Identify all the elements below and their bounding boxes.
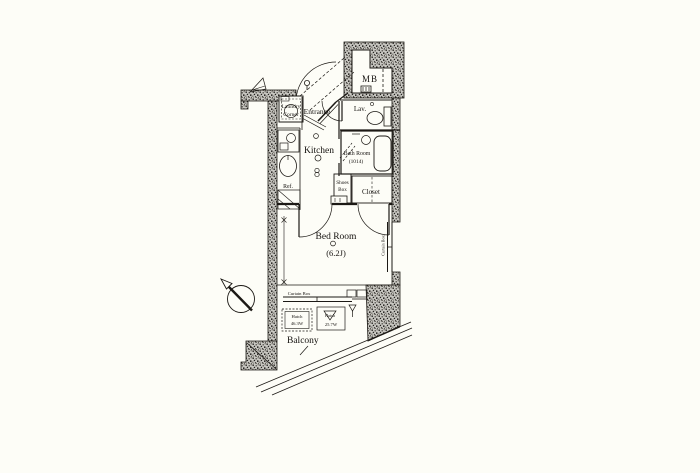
- shoes-label-1: Shoes: [336, 180, 348, 186]
- curtain-box-bottom-label: Curtain Box: [288, 291, 311, 296]
- bath-label-1: Bath Room: [344, 151, 371, 157]
- hatch-left-label-2: 46.3W: [291, 321, 304, 326]
- grill-icon: [280, 143, 288, 150]
- hatch-right-label-2: 25.7W: [325, 322, 338, 327]
- wall-corner-block: [366, 285, 400, 341]
- door-dashed-line: [300, 58, 344, 96]
- entrance-label: Entrance: [304, 107, 331, 116]
- hatch-left-label-1: Hatch: [292, 314, 304, 319]
- laundry-label-2: Corner: [283, 112, 299, 118]
- compass: [221, 279, 255, 313]
- laundry-label-1: Laundry: [282, 104, 301, 110]
- bathtub-icon: [374, 136, 391, 171]
- curtain-box-right-label: Curtain Box: [381, 234, 386, 255]
- toilet-tank-icon: [384, 107, 391, 126]
- toilet-bowl-icon: [367, 112, 383, 125]
- basin-icon: [362, 136, 371, 145]
- ref-label: Ref.: [283, 183, 293, 190]
- site-boundary-lines: [256, 322, 412, 395]
- bedroom: Bed Room (6.2J): [277, 204, 392, 285]
- wall-left-column: [268, 101, 277, 341]
- boundary-tick: [300, 346, 308, 355]
- east-window: Curtain Box: [381, 222, 393, 272]
- hatch-left-box: [282, 309, 312, 331]
- bath-label-2: (1014): [349, 158, 364, 165]
- wall-top-band-step: [241, 101, 248, 109]
- ceiling-symbol-1: [314, 134, 319, 139]
- sill-box-2: [357, 290, 367, 297]
- compass-needle: [228, 286, 252, 311]
- hatch-right-label-1: Hatch: [325, 313, 336, 318]
- toilet-handle-icon: [370, 102, 373, 105]
- floorplan-page: MB Entrance Laundry Corner Lav.: [0, 0, 700, 473]
- shoes-label-2: Box: [338, 187, 347, 193]
- bedroom-label-2: (6.2J): [326, 248, 346, 258]
- wall-right-column-lower: [392, 272, 400, 285]
- bedroom-label-1: Bed Room: [316, 232, 358, 242]
- fridge-diagonal-1: [278, 190, 300, 209]
- floorplan-drawing: MB Entrance Laundry Corner Lav.: [0, 0, 700, 473]
- door-knob-icon: [304, 80, 309, 85]
- wall-balcony-left-block: [241, 341, 277, 370]
- sill-box-1: [347, 290, 356, 297]
- kitchen-label: Kitchen: [304, 146, 334, 156]
- threshold-box: [331, 196, 347, 204]
- closet-label: Closet: [362, 188, 380, 196]
- bathroom: Bath Room (1014): [340, 131, 393, 174]
- boundary-line-2: [261, 328, 412, 392]
- drain-marker-icon: [349, 305, 356, 311]
- boundary-line-1: [256, 322, 411, 387]
- closet-door-arc: [358, 204, 389, 235]
- laundry-corner: Laundry Corner: [279, 96, 303, 122]
- balcony: Hatch 46.3W Hatch 25.7W Balcony: [282, 305, 356, 346]
- burner-icon: [287, 134, 296, 143]
- storage: Shoes Box Closet: [331, 174, 392, 204]
- balcony-label: Balcony: [287, 336, 319, 346]
- stove-box: [278, 130, 299, 152]
- lav-label: Lav.: [354, 105, 366, 113]
- mb-label: MB: [362, 74, 378, 84]
